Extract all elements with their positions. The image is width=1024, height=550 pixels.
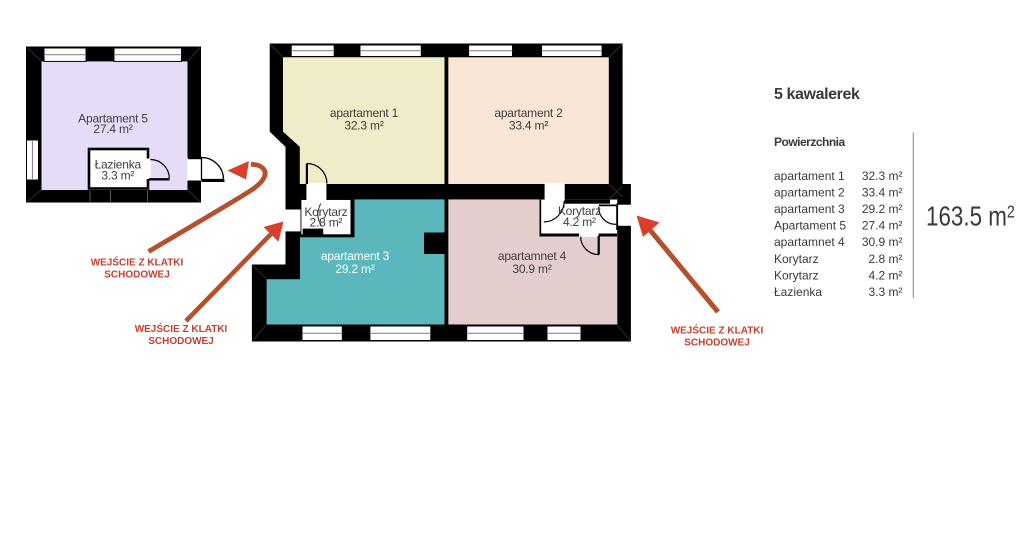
svg-text:2.8 m²: 2.8 m²: [868, 252, 902, 266]
svg-text:WEJŚCIE Z KLATKI: WEJŚCIE Z KLATKI: [671, 324, 764, 337]
svg-text:apartamnet 4: apartamnet 4: [774, 235, 845, 249]
svg-text:4.2 m²: 4.2 m²: [868, 268, 902, 282]
svg-text:apartament 2: apartament 2: [774, 186, 845, 200]
svg-text:apartament 3: apartament 3: [774, 202, 845, 216]
svg-text:4.2 m²: 4.2 m²: [563, 215, 596, 229]
svg-text:33.4 m²: 33.4 m²: [862, 186, 903, 200]
svg-text:apartament 1: apartament 1: [774, 169, 845, 183]
svg-text:29.2 m²: 29.2 m²: [862, 202, 903, 216]
svg-text:32.3 m²: 32.3 m²: [344, 119, 383, 133]
svg-text:WEJŚCIE Z KLATKI: WEJŚCIE Z KLATKI: [91, 256, 184, 269]
svg-text:Łazienka: Łazienka: [774, 285, 822, 299]
svg-text:27.4 m²: 27.4 m²: [93, 122, 132, 136]
svg-text:30.9 m²: 30.9 m²: [862, 235, 903, 249]
svg-text:3.3 m²: 3.3 m²: [868, 285, 902, 299]
svg-text:Apartament 5: Apartament 5: [774, 219, 846, 233]
svg-text:Powierzchnia: Powierzchnia: [774, 135, 846, 149]
svg-text:27.4 m²: 27.4 m²: [862, 219, 903, 233]
svg-text:2.8 m²: 2.8 m²: [309, 216, 342, 230]
svg-text:SCHODOWEJ: SCHODOWEJ: [684, 338, 750, 349]
svg-text:SCHODOWEJ: SCHODOWEJ: [148, 336, 214, 347]
svg-text:WEJŚCIE Z KLATKI: WEJŚCIE Z KLATKI: [135, 322, 228, 335]
svg-text:3.3 m²: 3.3 m²: [101, 169, 134, 183]
svg-text:33.4 m²: 33.4 m²: [509, 119, 548, 133]
svg-text:Korytarz: Korytarz: [774, 268, 819, 282]
svg-text:163.5 m2: 163.5 m2: [926, 201, 1015, 232]
svg-text:30.9 m²: 30.9 m²: [512, 262, 551, 276]
svg-text:32.3 m²: 32.3 m²: [862, 169, 903, 183]
svg-text:Korytarz: Korytarz: [774, 252, 819, 266]
svg-text:29.2 m²: 29.2 m²: [335, 262, 374, 276]
svg-text:SCHODOWEJ: SCHODOWEJ: [104, 270, 170, 281]
svg-text:5 kawalerek: 5 kawalerek: [774, 86, 860, 103]
